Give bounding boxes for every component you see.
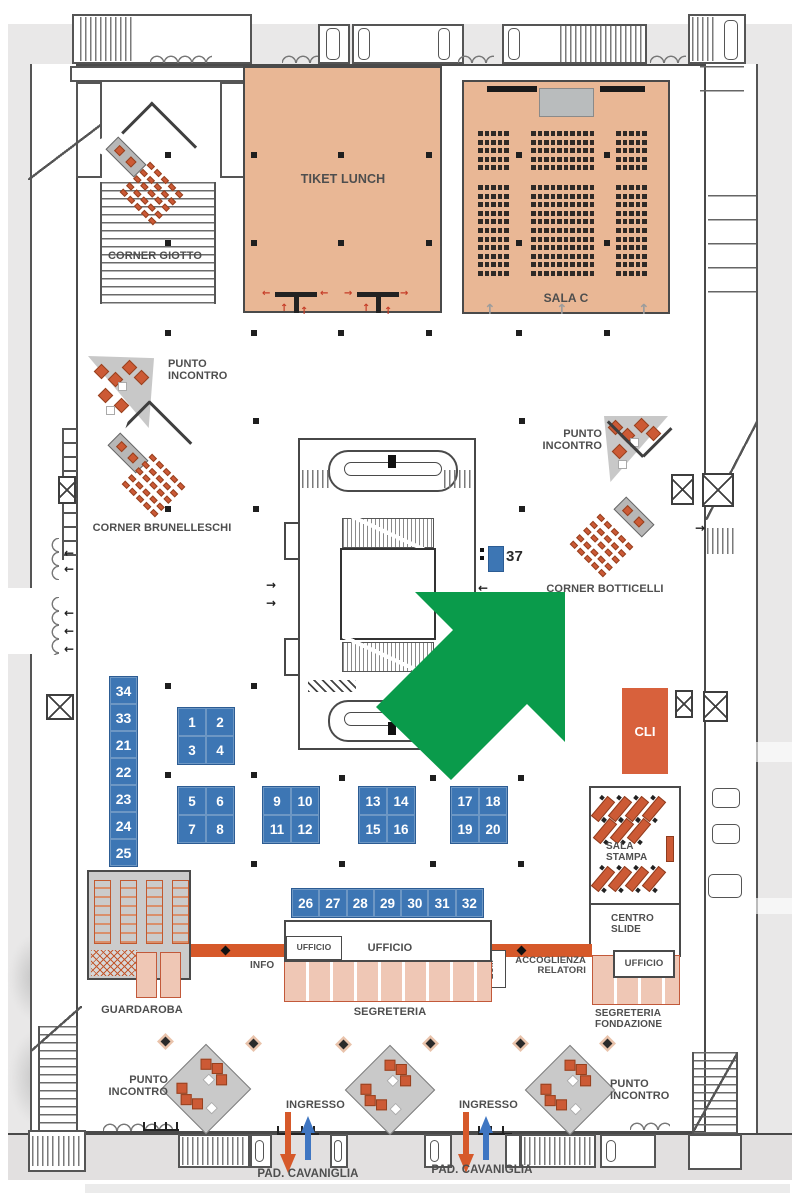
seat bbox=[557, 262, 562, 267]
revolving-door-hatch bbox=[182, 1137, 246, 1165]
seat bbox=[135, 467, 143, 475]
seat bbox=[551, 148, 556, 153]
seat bbox=[491, 211, 496, 216]
seat bbox=[616, 262, 621, 267]
seat bbox=[498, 254, 503, 259]
seat bbox=[491, 228, 496, 233]
seat bbox=[478, 140, 483, 145]
seat bbox=[538, 140, 543, 145]
seat bbox=[154, 183, 162, 191]
seat bbox=[544, 165, 549, 170]
seat bbox=[616, 165, 621, 170]
seat bbox=[504, 271, 509, 276]
booth: 5 bbox=[178, 787, 206, 815]
seat bbox=[616, 140, 621, 145]
seat bbox=[491, 245, 496, 250]
elevator-icon bbox=[702, 473, 734, 507]
seat bbox=[531, 194, 536, 199]
seat bbox=[538, 165, 543, 170]
seat bbox=[583, 202, 588, 207]
seat bbox=[583, 527, 591, 535]
stairs bbox=[58, 1136, 80, 1166]
elevator-icon bbox=[703, 691, 728, 722]
seat bbox=[504, 157, 509, 162]
stage-truss bbox=[600, 86, 645, 92]
seat bbox=[551, 228, 556, 233]
seat bbox=[616, 157, 621, 162]
seat bbox=[485, 254, 490, 259]
desk bbox=[666, 836, 674, 862]
seat bbox=[531, 211, 536, 216]
seat bbox=[629, 140, 634, 145]
seat bbox=[140, 168, 148, 176]
seat bbox=[478, 165, 483, 170]
core-lobe bbox=[284, 522, 300, 560]
seat bbox=[491, 202, 496, 207]
booth: 31 bbox=[428, 889, 455, 917]
seat bbox=[504, 211, 509, 216]
seat bbox=[590, 228, 595, 233]
seat bbox=[642, 271, 647, 276]
door-arcs bbox=[48, 538, 59, 580]
seat bbox=[629, 228, 634, 233]
seat bbox=[161, 190, 169, 198]
seat bbox=[491, 271, 496, 276]
entry-arrow-icon: ↑ bbox=[484, 302, 496, 318]
seat bbox=[629, 185, 634, 190]
booth: 6 bbox=[206, 787, 234, 815]
seat bbox=[636, 185, 641, 190]
seat bbox=[576, 534, 584, 542]
room-tiket-lunch bbox=[243, 66, 442, 313]
seat bbox=[590, 271, 595, 276]
seat bbox=[531, 157, 536, 162]
stage-truss bbox=[487, 86, 537, 92]
booth: 21 bbox=[110, 731, 137, 758]
seat bbox=[564, 131, 569, 136]
pillar bbox=[606, 1140, 616, 1162]
seat bbox=[590, 140, 595, 145]
seat bbox=[142, 474, 150, 482]
seat bbox=[485, 131, 490, 136]
booth-group-9-12: 9 10 11 12 bbox=[262, 786, 320, 844]
seat bbox=[629, 194, 634, 199]
seat bbox=[623, 262, 628, 267]
direction-arrow-icon: → bbox=[695, 521, 705, 535]
seat bbox=[577, 194, 582, 199]
ufficio-label: UFFICIO bbox=[358, 942, 422, 954]
seat bbox=[485, 262, 490, 267]
seat bbox=[590, 219, 595, 224]
seat bbox=[531, 228, 536, 233]
seat bbox=[642, 228, 647, 233]
door-frame bbox=[376, 292, 381, 313]
seat bbox=[538, 254, 543, 259]
seat bbox=[485, 245, 490, 250]
seat bbox=[538, 211, 543, 216]
seat bbox=[583, 185, 588, 190]
room-ufficio-right: UFFICIO bbox=[613, 950, 675, 978]
seat bbox=[544, 271, 549, 276]
door-marks bbox=[143, 1122, 179, 1131]
seat bbox=[544, 254, 549, 259]
entrance-arrow-down-icon bbox=[280, 1112, 296, 1174]
seat bbox=[504, 237, 509, 242]
exit-arrow-icon: ← bbox=[64, 642, 74, 656]
ufficio-label: UFFICIO bbox=[297, 943, 332, 952]
restroom bbox=[708, 874, 742, 898]
seat bbox=[478, 254, 483, 259]
seat bbox=[478, 271, 483, 276]
door-arcs bbox=[630, 1120, 670, 1132]
seat bbox=[564, 211, 569, 216]
seat bbox=[577, 237, 582, 242]
door-arcs bbox=[458, 53, 494, 64]
segreteria-label: SEGRETERIA bbox=[352, 1006, 428, 1018]
core-lobe bbox=[284, 638, 300, 676]
seat bbox=[623, 228, 628, 233]
seat bbox=[557, 140, 562, 145]
door-arcs bbox=[48, 597, 59, 655]
booth: 20 bbox=[479, 815, 507, 843]
segreteria-desks bbox=[284, 958, 492, 1002]
seat bbox=[557, 228, 562, 233]
seat bbox=[478, 237, 483, 242]
seat bbox=[564, 228, 569, 233]
seat bbox=[163, 482, 171, 490]
elevator-icon bbox=[675, 690, 693, 718]
seat bbox=[531, 148, 536, 153]
seat bbox=[570, 262, 575, 267]
seat bbox=[564, 165, 569, 170]
seat bbox=[557, 237, 562, 242]
exit-arrow-icon: ← bbox=[64, 624, 74, 638]
booth: 19 bbox=[451, 815, 479, 843]
seating-block bbox=[616, 185, 647, 276]
seat bbox=[583, 219, 588, 224]
seat bbox=[577, 245, 582, 250]
exit-arrow-icon: ← bbox=[262, 288, 270, 299]
seat bbox=[616, 194, 621, 199]
pillar bbox=[326, 28, 340, 60]
seat bbox=[544, 131, 549, 136]
seat bbox=[636, 140, 641, 145]
seat bbox=[577, 262, 582, 267]
seat bbox=[577, 185, 582, 190]
pillar bbox=[508, 28, 520, 60]
seat bbox=[629, 148, 634, 153]
pillar bbox=[358, 28, 370, 60]
seat bbox=[551, 157, 556, 162]
booth: 7 bbox=[178, 815, 206, 843]
seat bbox=[583, 228, 588, 233]
booth: 14 bbox=[387, 787, 415, 815]
exit-arrow-icon: → bbox=[400, 288, 408, 299]
booth: 34 bbox=[110, 677, 137, 704]
seat bbox=[583, 245, 588, 250]
seat bbox=[531, 219, 536, 224]
info-label: INFO bbox=[250, 960, 286, 971]
highlight-arrow-icon bbox=[370, 585, 570, 785]
seat bbox=[128, 474, 136, 482]
grate bbox=[308, 680, 356, 692]
seat bbox=[577, 148, 582, 153]
seat bbox=[538, 202, 543, 207]
seat bbox=[478, 148, 483, 153]
booth: 24 bbox=[110, 812, 137, 839]
seat bbox=[577, 131, 582, 136]
seat bbox=[504, 254, 509, 259]
seat bbox=[551, 271, 556, 276]
elevator-icon bbox=[58, 476, 76, 504]
seat bbox=[616, 237, 621, 242]
seat bbox=[570, 148, 575, 153]
desk bbox=[160, 952, 181, 998]
seat bbox=[623, 157, 628, 162]
door-arcs bbox=[282, 53, 318, 64]
seat bbox=[538, 237, 543, 242]
seat bbox=[577, 219, 582, 224]
seat bbox=[551, 194, 556, 199]
seat bbox=[478, 245, 483, 250]
seat bbox=[629, 237, 634, 242]
seat bbox=[551, 262, 556, 267]
seat bbox=[577, 165, 582, 170]
booth: 33 bbox=[110, 704, 137, 731]
seat bbox=[551, 254, 556, 259]
booth-row-26-32: 26 27 28 29 30 31 32 bbox=[291, 888, 484, 918]
seat bbox=[504, 245, 509, 250]
seat bbox=[491, 140, 496, 145]
seat bbox=[504, 185, 509, 190]
seat bbox=[504, 194, 509, 199]
seat bbox=[557, 202, 562, 207]
seat bbox=[583, 271, 588, 276]
entrance-arrow-up-icon bbox=[301, 1116, 315, 1160]
seat bbox=[570, 219, 575, 224]
seat bbox=[551, 237, 556, 242]
room-label-tiket-lunch: TIKET LUNCH bbox=[288, 173, 398, 187]
seat bbox=[604, 535, 612, 543]
seat bbox=[623, 245, 628, 250]
punto-incontro-label: PUNTO INCONTRO bbox=[540, 428, 602, 452]
seat bbox=[642, 148, 647, 153]
seat bbox=[498, 211, 503, 216]
stair-landing bbox=[708, 195, 756, 303]
pad-cavaniglia-label: PAD. CAVANIGLIA bbox=[256, 1168, 360, 1181]
seat bbox=[531, 140, 536, 145]
wall-gap bbox=[8, 588, 32, 654]
booth: 1 bbox=[178, 708, 206, 736]
booth-37-label: 37 bbox=[506, 549, 523, 566]
seat bbox=[544, 202, 549, 207]
seat bbox=[478, 131, 483, 136]
seat bbox=[616, 271, 621, 276]
wall-diagonal bbox=[28, 124, 102, 180]
grate bbox=[302, 470, 330, 488]
seat bbox=[623, 202, 628, 207]
seat bbox=[583, 157, 588, 162]
seat bbox=[491, 131, 496, 136]
seat bbox=[135, 481, 143, 489]
seat bbox=[642, 131, 647, 136]
seat bbox=[149, 467, 157, 475]
seat bbox=[498, 140, 503, 145]
seat bbox=[577, 254, 582, 259]
seat bbox=[531, 165, 536, 170]
seat bbox=[636, 262, 641, 267]
seat bbox=[636, 254, 641, 259]
pillar-dots bbox=[165, 152, 171, 158]
seat bbox=[564, 254, 569, 259]
seat bbox=[557, 271, 562, 276]
seat bbox=[564, 219, 569, 224]
pillar bbox=[430, 1140, 439, 1162]
seat bbox=[551, 131, 556, 136]
booth: 12 bbox=[291, 815, 319, 843]
seat bbox=[583, 131, 588, 136]
seat bbox=[590, 202, 595, 207]
seat bbox=[485, 157, 490, 162]
seat bbox=[557, 165, 562, 170]
seat bbox=[577, 157, 582, 162]
seat bbox=[642, 165, 647, 170]
seat bbox=[583, 262, 588, 267]
seat bbox=[142, 460, 150, 468]
seat bbox=[623, 140, 628, 145]
seat bbox=[498, 194, 503, 199]
booth: 17 bbox=[451, 787, 479, 815]
seat bbox=[531, 254, 536, 259]
seat bbox=[538, 148, 543, 153]
stair-landing bbox=[70, 66, 256, 82]
seat bbox=[616, 228, 621, 233]
seat bbox=[478, 262, 483, 267]
seat bbox=[485, 194, 490, 199]
seat bbox=[577, 271, 582, 276]
seat bbox=[570, 245, 575, 250]
seat bbox=[126, 182, 134, 190]
seating-block bbox=[616, 131, 647, 170]
seat bbox=[148, 203, 156, 211]
seat bbox=[504, 148, 509, 153]
pillar-dot bbox=[480, 548, 484, 552]
seat bbox=[590, 165, 595, 170]
sala-stampa-label: SALA STAMPA bbox=[606, 841, 656, 863]
seat bbox=[577, 202, 582, 207]
seat bbox=[616, 202, 621, 207]
restroom bbox=[712, 788, 740, 808]
punto-incontro-label: PUNTO INCONTRO bbox=[610, 1078, 676, 1102]
seat bbox=[570, 228, 575, 233]
seat bbox=[491, 157, 496, 162]
seat bbox=[478, 157, 483, 162]
booth: 26 bbox=[292, 889, 319, 917]
seat bbox=[629, 254, 634, 259]
centro-slide-label: CENTRO SLIDE bbox=[611, 913, 663, 935]
stairs bbox=[80, 17, 135, 61]
pillar bbox=[438, 28, 450, 60]
seat bbox=[531, 237, 536, 242]
seat bbox=[623, 194, 628, 199]
entry-arrow-icon: ↑ bbox=[300, 306, 308, 317]
seat bbox=[557, 254, 562, 259]
stair-base bbox=[688, 1134, 742, 1170]
guardaroba-label: GUARDAROBA bbox=[96, 1004, 188, 1016]
seat bbox=[590, 520, 598, 528]
seat bbox=[604, 548, 612, 556]
entry-arrow-icon: ↑ bbox=[362, 303, 370, 314]
seat bbox=[616, 211, 621, 216]
seat bbox=[544, 262, 549, 267]
seat bbox=[478, 228, 483, 233]
seat bbox=[498, 262, 503, 267]
seat bbox=[616, 185, 621, 190]
seat bbox=[590, 262, 595, 267]
seat bbox=[485, 271, 490, 276]
seat bbox=[140, 182, 148, 190]
seat bbox=[590, 131, 595, 136]
seat bbox=[544, 228, 549, 233]
exit-arrow-icon: → bbox=[344, 288, 352, 299]
pillar bbox=[724, 20, 738, 60]
exit-arrow-icon: ← bbox=[64, 562, 74, 576]
seat bbox=[149, 481, 157, 489]
seat bbox=[590, 211, 595, 216]
booth: 18 bbox=[479, 787, 507, 815]
seat bbox=[570, 211, 575, 216]
seat bbox=[616, 254, 621, 259]
pillar-dot bbox=[480, 556, 484, 560]
seat bbox=[583, 254, 588, 259]
entry-arrow-icon: ↑ bbox=[384, 306, 392, 317]
seat bbox=[583, 148, 588, 153]
seat bbox=[478, 185, 483, 190]
seat bbox=[636, 245, 641, 250]
seat bbox=[564, 148, 569, 153]
seat bbox=[636, 131, 641, 136]
seat bbox=[504, 202, 509, 207]
seat bbox=[504, 131, 509, 136]
seat bbox=[629, 157, 634, 162]
floor-plan-map: ← ← ← ← ← → TIKET LUNCH ← ← → → bbox=[0, 0, 800, 1200]
seat bbox=[491, 194, 496, 199]
punto-incontro-label: PUNTO INCONTRO bbox=[104, 1074, 168, 1098]
seat bbox=[141, 196, 149, 204]
seat bbox=[491, 254, 496, 259]
seat bbox=[616, 148, 621, 153]
seat bbox=[583, 194, 588, 199]
seat bbox=[590, 534, 598, 542]
elevator-icon bbox=[46, 694, 74, 720]
seat bbox=[623, 148, 628, 153]
seat bbox=[583, 211, 588, 216]
seat bbox=[485, 148, 490, 153]
seat bbox=[538, 228, 543, 233]
seat bbox=[544, 157, 549, 162]
seat bbox=[544, 219, 549, 224]
seat bbox=[133, 175, 141, 183]
seat bbox=[636, 157, 641, 162]
seat bbox=[485, 237, 490, 242]
seat bbox=[623, 254, 628, 259]
entrance-arrow-up-icon bbox=[479, 1116, 493, 1160]
restroom bbox=[712, 824, 740, 844]
seat bbox=[156, 488, 164, 496]
seat bbox=[623, 271, 628, 276]
seat bbox=[642, 254, 647, 259]
seat bbox=[642, 202, 647, 207]
